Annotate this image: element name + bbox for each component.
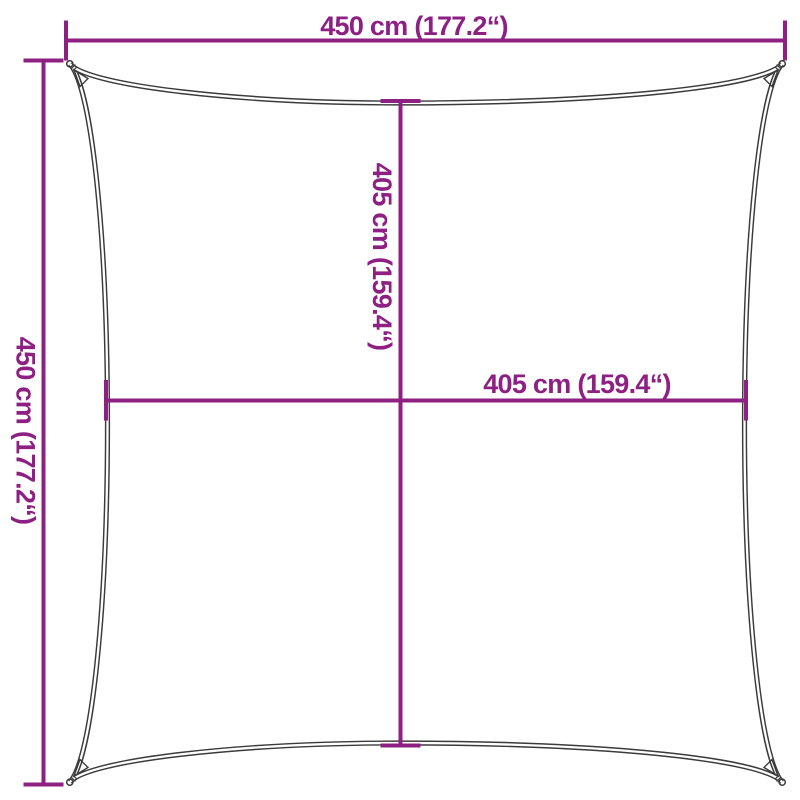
svg-text:405 cm (159.4“): 405 cm (159.4“) [367,163,397,351]
svg-text:405 cm (159.4“): 405 cm (159.4“) [483,369,671,399]
svg-text:450 cm (177.2“): 450 cm (177.2“) [320,11,508,41]
svg-text:450 cm (177.2“): 450 cm (177.2“) [11,337,41,525]
